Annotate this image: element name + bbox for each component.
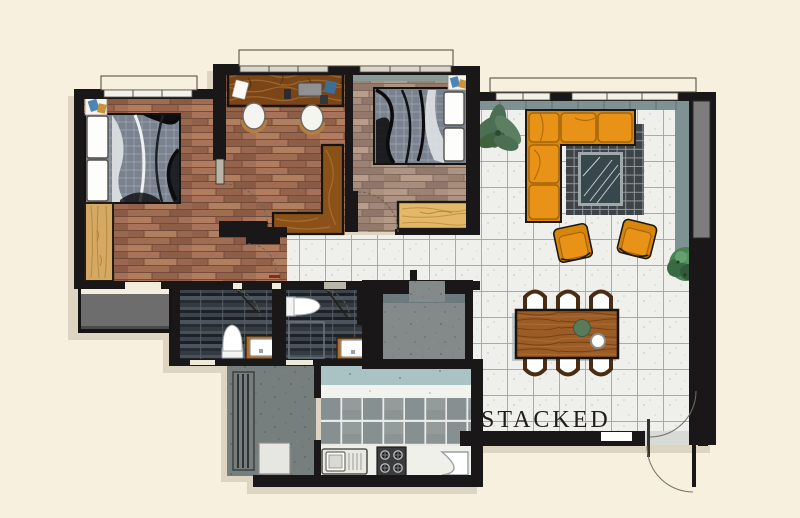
svg-text:STACKED: STACKED	[481, 407, 611, 433]
